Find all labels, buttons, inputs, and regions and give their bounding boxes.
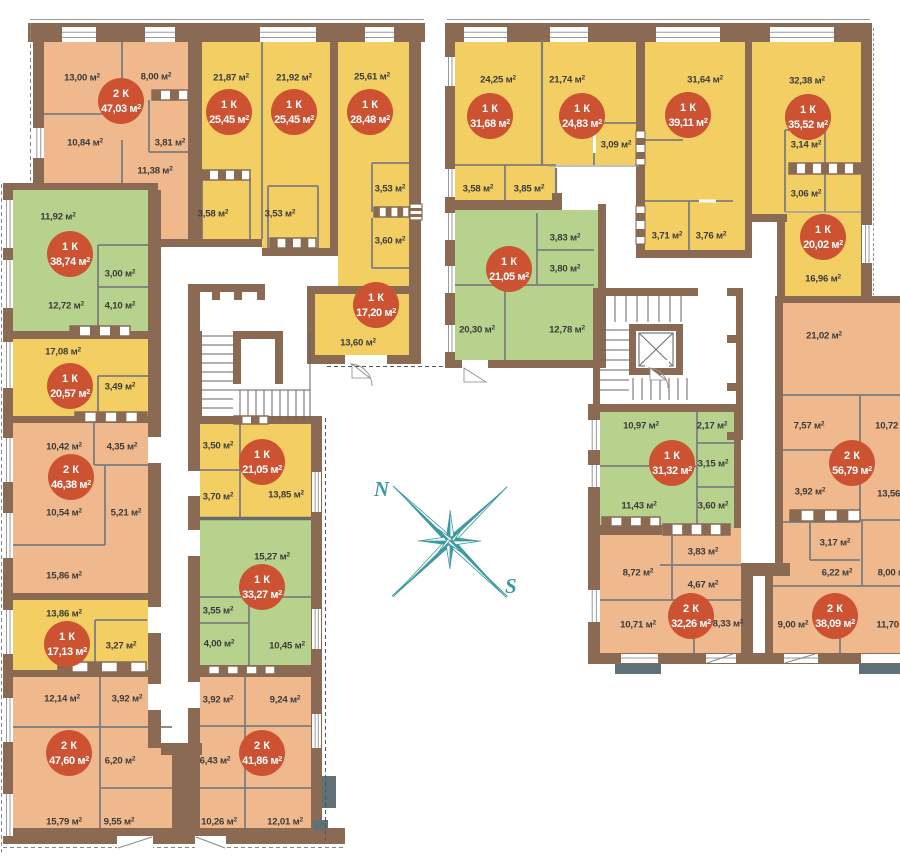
svg-text:3,27 м2: 3,27 м2 xyxy=(106,640,137,651)
svg-text:20,30 м2: 20,30 м2 xyxy=(459,324,495,335)
svg-text:35,52 м2: 35,52 м2 xyxy=(788,118,828,131)
svg-text:7,57 м2: 7,57 м2 xyxy=(794,420,825,431)
svg-text:3,60 м2: 3,60 м2 xyxy=(375,235,406,246)
svg-text:3,92 м2: 3,92 м2 xyxy=(795,486,826,497)
svg-text:1 К: 1 К xyxy=(664,450,680,462)
svg-text:11,43 м2: 11,43 м2 xyxy=(621,500,657,511)
svg-text:9,55 м2: 9,55 м2 xyxy=(104,816,135,827)
svg-text:2,17 м2: 2,17 м2 xyxy=(697,420,728,431)
svg-text:24,25 м2: 24,25 м2 xyxy=(480,74,516,85)
svg-text:12,72 м2: 12,72 м2 xyxy=(48,300,84,311)
svg-text:15,79 м2: 15,79 м2 xyxy=(46,816,82,827)
svg-text:1 К: 1 К xyxy=(815,224,831,236)
svg-text:13,85 м2: 13,85 м2 xyxy=(268,489,304,500)
svg-text:3,49 м2: 3,49 м2 xyxy=(105,381,136,392)
svg-text:9,00 м2: 9,00 м2 xyxy=(778,619,809,630)
svg-text:1 К: 1 К xyxy=(368,292,384,304)
svg-text:3,81 м2: 3,81 м2 xyxy=(155,137,186,148)
svg-text:2 К: 2 К xyxy=(113,88,129,100)
svg-text:10,42 м2: 10,42 м2 xyxy=(46,441,82,452)
svg-text:3,58 м2: 3,58 м2 xyxy=(463,183,494,194)
svg-text:13,00 м2: 13,00 м2 xyxy=(64,72,100,83)
svg-text:3,53 м2: 3,53 м2 xyxy=(265,208,296,219)
svg-text:12,14 м2: 12,14 м2 xyxy=(44,693,80,704)
svg-text:1 К: 1 К xyxy=(254,574,270,586)
svg-text:3,70 м2: 3,70 м2 xyxy=(203,491,234,502)
svg-text:10,84 м2: 10,84 м2 xyxy=(67,137,103,148)
svg-text:47,60 м2: 47,60 м2 xyxy=(49,754,89,767)
svg-text:2 К: 2 К xyxy=(844,450,860,462)
svg-text:33,27 м2: 33,27 м2 xyxy=(242,588,282,601)
svg-text:10,97 м2: 10,97 м2 xyxy=(623,420,659,431)
svg-text:21,05 м2: 21,05 м2 xyxy=(489,270,529,283)
svg-text:3,17 м2: 3,17 м2 xyxy=(820,537,851,548)
svg-text:3,71 м2: 3,71 м2 xyxy=(652,230,683,241)
svg-text:4,00 м2: 4,00 м2 xyxy=(204,638,235,649)
svg-text:16,96 м2: 16,96 м2 xyxy=(805,273,841,284)
svg-text:3,55 м2: 3,55 м2 xyxy=(203,605,234,616)
svg-text:31,68 м2: 31,68 м2 xyxy=(470,117,510,130)
svg-text:13,60 м2: 13,60 м2 xyxy=(340,337,376,348)
svg-text:21,92 м2: 21,92 м2 xyxy=(276,72,312,83)
svg-text:2 К: 2 К xyxy=(63,464,79,476)
svg-text:1 К: 1 К xyxy=(501,256,517,268)
svg-text:12,01 м2: 12,01 м2 xyxy=(267,816,303,827)
svg-text:32,26 м2: 32,26 м2 xyxy=(671,617,711,630)
svg-text:15,86 м2: 15,86 м2 xyxy=(46,570,82,581)
svg-text:1 К: 1 К xyxy=(574,103,590,115)
svg-text:3,92 м2: 3,92 м2 xyxy=(112,693,143,704)
svg-text:17,08 м2: 17,08 м2 xyxy=(45,346,81,357)
svg-text:38,74 м2: 38,74 м2 xyxy=(50,255,90,268)
svg-text:21,87 м2: 21,87 м2 xyxy=(213,72,249,83)
svg-text:2 К: 2 К xyxy=(827,603,843,615)
svg-text:3,14 м2: 3,14 м2 xyxy=(791,139,822,150)
svg-text:1 К: 1 К xyxy=(286,99,302,111)
svg-text:S: S xyxy=(505,574,517,598)
svg-text:13,86 м2: 13,86 м2 xyxy=(46,608,82,619)
svg-text:3,06 м2: 3,06 м2 xyxy=(791,188,822,199)
svg-text:47,03 м2: 47,03 м2 xyxy=(101,102,141,115)
svg-text:6,22 м2: 6,22 м2 xyxy=(822,567,853,578)
svg-text:31,64 м2: 31,64 м2 xyxy=(687,74,723,85)
svg-text:8,72 м2: 8,72 м2 xyxy=(623,567,654,578)
svg-text:24,83 м2: 24,83 м2 xyxy=(562,117,602,130)
svg-text:15,27 м2: 15,27 м2 xyxy=(254,551,290,562)
svg-text:10,45 м2: 10,45 м2 xyxy=(269,640,305,651)
svg-text:6,43 м2: 6,43 м2 xyxy=(200,755,231,766)
svg-text:8,33 м2: 8,33 м2 xyxy=(713,618,744,629)
svg-text:2 К: 2 К xyxy=(683,603,699,615)
svg-text:4,10 м2: 4,10 м2 xyxy=(105,300,136,311)
svg-text:1 К: 1 К xyxy=(254,449,270,461)
svg-text:38,09 м2: 38,09 м2 xyxy=(815,617,855,630)
svg-text:3,60 м2: 3,60 м2 xyxy=(698,500,729,511)
svg-text:3,83 м2: 3,83 м2 xyxy=(688,546,719,557)
svg-text:1 К: 1 К xyxy=(59,631,75,643)
svg-text:3,83 м2: 3,83 м2 xyxy=(550,232,581,243)
svg-text:21,05 м2: 21,05 м2 xyxy=(242,463,282,476)
svg-text:28,48 м2: 28,48 м2 xyxy=(350,113,390,126)
svg-text:25,45 м2: 25,45 м2 xyxy=(209,113,249,126)
svg-text:56,79 м2: 56,79 м2 xyxy=(832,464,872,477)
svg-text:20,02 м2: 20,02 м2 xyxy=(803,238,843,251)
svg-text:31,32 м2: 31,32 м2 xyxy=(652,464,692,477)
svg-text:10,72 м2: 10,72 м2 xyxy=(875,420,900,431)
svg-text:5,21 м2: 5,21 м2 xyxy=(111,507,142,518)
svg-text:1 К: 1 К xyxy=(800,104,816,116)
svg-text:17,13 м2: 17,13 м2 xyxy=(47,645,87,658)
svg-text:1 К: 1 К xyxy=(62,241,78,253)
svg-text:21,74 м2: 21,74 м2 xyxy=(549,74,585,85)
svg-text:8,00 м2: 8,00 м2 xyxy=(878,567,900,578)
svg-text:10,26 м2: 10,26 м2 xyxy=(201,816,237,827)
svg-text:41,86 м2: 41,86 м2 xyxy=(242,754,282,767)
svg-text:32,38 м2: 32,38 м2 xyxy=(789,75,825,86)
svg-text:3,53 м2: 3,53 м2 xyxy=(375,183,406,194)
svg-text:3,76 м2: 3,76 м2 xyxy=(696,230,727,241)
svg-text:4,35 м2: 4,35 м2 xyxy=(107,441,138,452)
svg-text:25,45 м2: 25,45 м2 xyxy=(274,113,314,126)
svg-text:25,61 м2: 25,61 м2 xyxy=(354,71,390,82)
svg-text:2 К: 2 К xyxy=(61,740,77,752)
svg-text:46,38 м2: 46,38 м2 xyxy=(51,478,91,491)
svg-text:11,38 м2: 11,38 м2 xyxy=(137,165,173,176)
svg-text:3,00 м2: 3,00 м2 xyxy=(105,268,136,279)
svg-text:3,58 м2: 3,58 м2 xyxy=(198,208,229,219)
svg-text:10,71 м2: 10,71 м2 xyxy=(620,619,656,630)
svg-text:3,92 м2: 3,92 м2 xyxy=(203,694,234,705)
svg-text:3,09 м2: 3,09 м2 xyxy=(601,139,632,150)
svg-text:13,56 м2: 13,56 м2 xyxy=(877,488,900,499)
svg-text:11,92 м2: 11,92 м2 xyxy=(40,211,76,222)
svg-text:1 К: 1 К xyxy=(62,373,78,385)
svg-text:1 К: 1 К xyxy=(221,99,237,111)
svg-text:2 К: 2 К xyxy=(254,740,270,752)
svg-text:4,67 м2: 4,67 м2 xyxy=(688,579,719,590)
svg-text:3,80 м2: 3,80 м2 xyxy=(550,263,581,274)
svg-text:N: N xyxy=(373,477,390,501)
svg-text:11,70 м2: 11,70 м2 xyxy=(876,619,900,630)
svg-text:21,02 м2: 21,02 м2 xyxy=(806,330,842,341)
svg-text:1 К: 1 К xyxy=(680,102,696,114)
svg-text:3,50 м2: 3,50 м2 xyxy=(203,440,234,451)
svg-text:17,20 м2: 17,20 м2 xyxy=(356,306,396,319)
svg-text:1 К: 1 К xyxy=(362,99,378,111)
svg-text:20,57 м2: 20,57 м2 xyxy=(50,387,90,400)
svg-text:39,11 м2: 39,11 м2 xyxy=(668,116,707,129)
svg-text:10,54 м2: 10,54 м2 xyxy=(46,507,82,518)
svg-text:9,24 м2: 9,24 м2 xyxy=(270,694,301,705)
svg-text:8,00 м2: 8,00 м2 xyxy=(141,71,172,82)
svg-text:1 К: 1 К xyxy=(482,103,498,115)
svg-text:12,78 м2: 12,78 м2 xyxy=(549,324,585,335)
svg-text:3,85 м2: 3,85 м2 xyxy=(514,183,545,194)
svg-text:6,20 м2: 6,20 м2 xyxy=(105,755,136,766)
svg-text:3,15 м2: 3,15 м2 xyxy=(698,458,729,469)
